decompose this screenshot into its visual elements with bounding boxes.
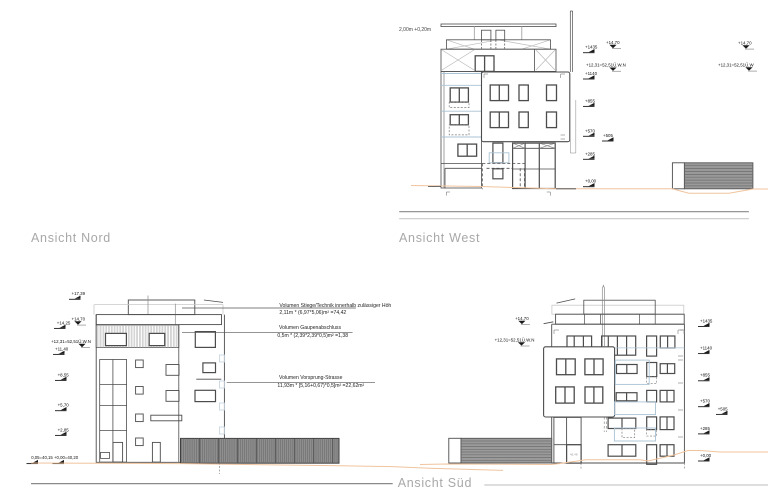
svg-text:+8,55: +8,55: [58, 372, 70, 377]
svg-text:2,11m * (6,97*5,06)m² =74,4: 2,11m * (6,97*5,06)m² =74,42: [279, 310, 346, 316]
svg-text:Ansicht Nord: Ansicht Nord: [31, 231, 111, 245]
svg-text:2,00m +0,20m: 2,00m +0,20m: [399, 27, 431, 33]
svg-text:Volumen Gaupenabschluss: Volumen Gaupenabschluss: [279, 325, 341, 331]
svg-text:+12,31=52,51Ü.W.N: +12,31=52,51Ü.W.N: [586, 63, 626, 68]
svg-text:45,48: 45,48: [570, 453, 578, 457]
svg-text:+11,40: +11,40: [55, 346, 69, 351]
svg-text:+12,31=52,51Ü.W.N: +12,31=52,51Ü.W.N: [495, 338, 535, 343]
svg-text:+0,00: +0,00: [700, 453, 712, 458]
svg-text:Volumen Stiege/Technik inner: Volumen Stiege/Technik innerhalb zulässi…: [279, 303, 391, 309]
svg-text:+1140: +1140: [585, 71, 598, 76]
svg-text:+14,70: +14,70: [606, 40, 620, 45]
svg-text:+5,70: +5,70: [58, 403, 70, 408]
svg-text:+2,85: +2,85: [58, 427, 70, 432]
svg-text:+855: +855: [585, 98, 595, 103]
svg-text:+855: +855: [700, 373, 710, 378]
svg-text:+570: +570: [585, 128, 595, 133]
svg-text:Volumen Vorsprung-Strasse: Volumen Vorsprung-Strasse: [279, 375, 343, 381]
svg-text:+505: +505: [603, 133, 613, 138]
svg-text:+1435: +1435: [585, 44, 598, 49]
svg-text:+0,00: +0,00: [585, 179, 597, 184]
svg-text:+12,31=52,51Ü.W: +12,31=52,51Ü.W: [718, 63, 754, 68]
svg-text:+12,31=52,51Ü.W.N: +12,31=52,51Ü.W.N: [51, 339, 91, 344]
svg-text:+14,70: +14,70: [738, 41, 752, 46]
svg-text:11,93m * [5,16+0,67)*0,5]m²: 11,93m * [5,16+0,67)*0,5]m² =22,62m²: [277, 383, 364, 389]
svg-text:0,05=40,15 +0,00=40,20: 0,05=40,15 +0,00=40,20: [31, 455, 79, 460]
svg-text:0,5m * (2,39*2,39*0,5)m² =1: 0,5m * (2,39*2,39*0,5)m² =1,38: [277, 333, 348, 339]
svg-text:+570: +570: [700, 399, 710, 404]
svg-text:+17,39: +17,39: [72, 291, 86, 296]
svg-text:+1435: +1435: [700, 318, 713, 323]
svg-text:+1140: +1140: [700, 346, 713, 351]
svg-text:Ansicht West: Ansicht West: [399, 231, 480, 245]
svg-text:+14,70: +14,70: [72, 316, 86, 321]
svg-text:+505: +505: [718, 406, 728, 411]
svg-text:+14,25: +14,25: [57, 320, 71, 325]
svg-text:Ansicht Süd: Ansicht Süd: [398, 476, 472, 490]
svg-text:+285: +285: [700, 426, 710, 431]
svg-text:+285: +285: [585, 151, 595, 156]
svg-text:+14,70: +14,70: [515, 316, 529, 321]
